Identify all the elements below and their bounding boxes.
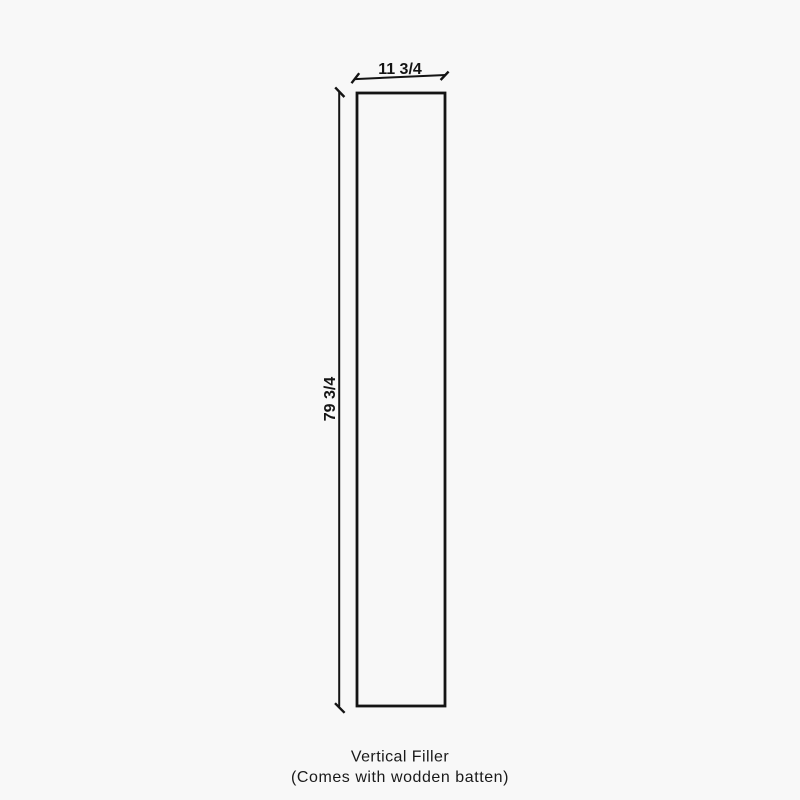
svg-text:11 3/4: 11 3/4: [378, 61, 422, 78]
svg-text:Vertical Filler: Vertical Filler: [351, 749, 450, 766]
svg-text:(Comes with wodden batten): (Comes with wodden batten): [291, 769, 509, 786]
svg-text:79 3/4: 79 3/4: [322, 377, 339, 422]
